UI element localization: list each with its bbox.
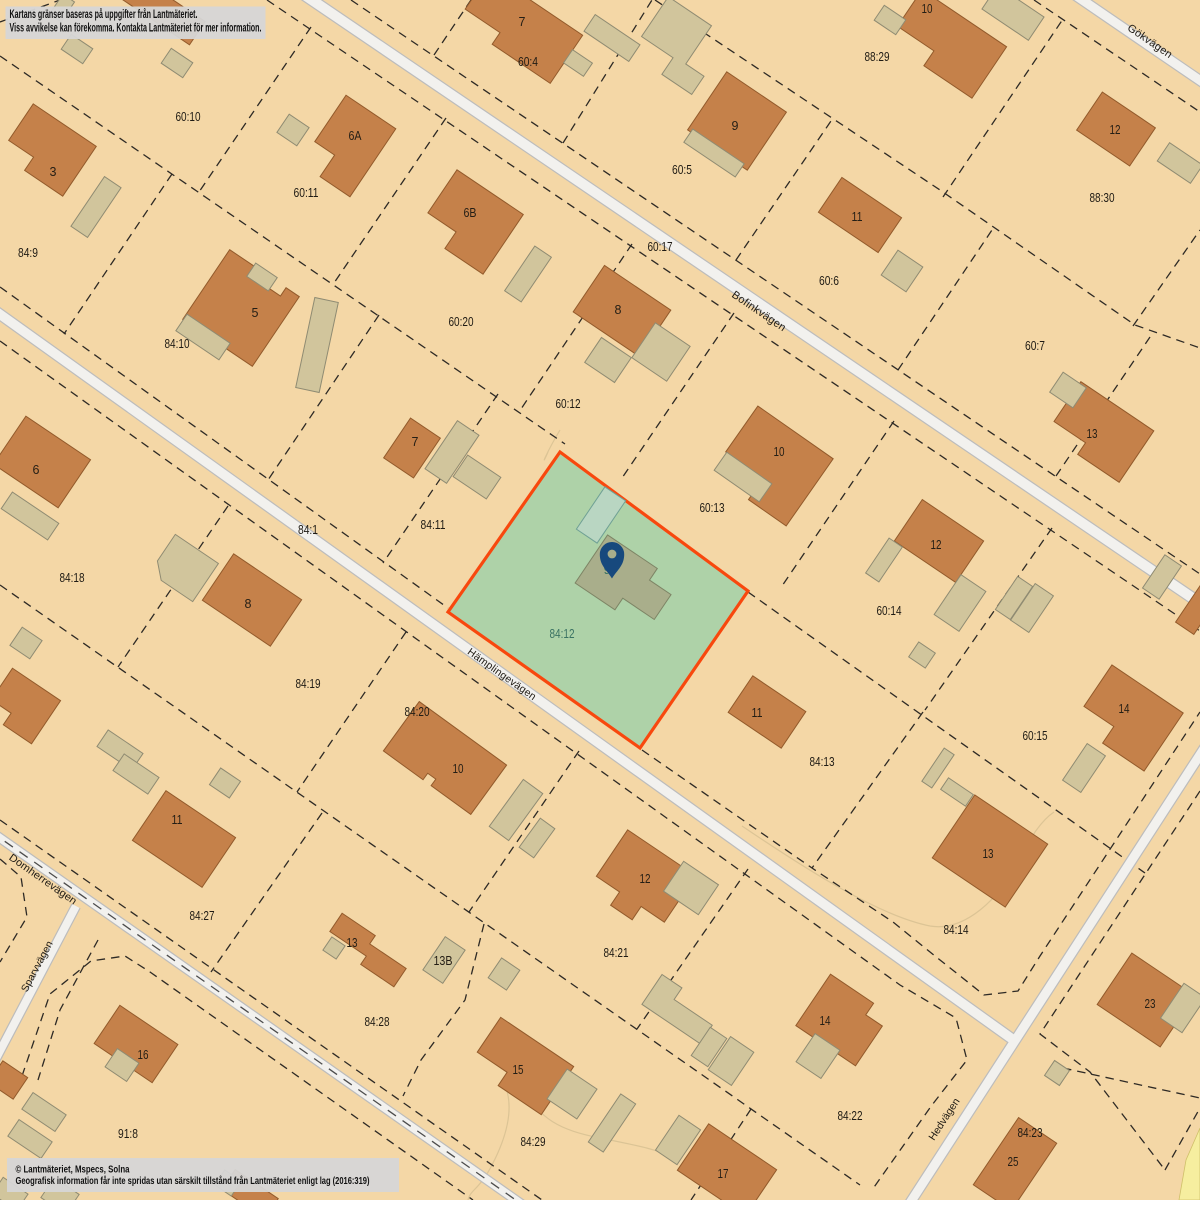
svg-text:84:11: 84:11 <box>421 518 446 532</box>
svg-text:88:29: 88:29 <box>865 50 890 64</box>
svg-text:Geografisk information får int: Geografisk information får inte spridas … <box>16 1175 370 1187</box>
svg-text:60:13: 60:13 <box>700 501 725 515</box>
svg-text:6A: 6A <box>349 129 363 143</box>
svg-text:84:1: 84:1 <box>298 523 318 537</box>
svg-text:60:11: 60:11 <box>294 186 319 200</box>
svg-text:7: 7 <box>519 15 526 29</box>
svg-text:11: 11 <box>172 813 183 827</box>
svg-text:84:12: 84:12 <box>550 627 575 641</box>
svg-text:84:28: 84:28 <box>365 1015 390 1029</box>
svg-text:25: 25 <box>1008 1155 1019 1169</box>
svg-text:10: 10 <box>453 762 464 776</box>
svg-text:Viss avvikelse kan förekomma.: Viss avvikelse kan förekomma. Kontakta L… <box>10 21 262 35</box>
svg-text:11: 11 <box>752 706 763 720</box>
svg-text:84:13: 84:13 <box>810 755 835 769</box>
svg-text:84:10: 84:10 <box>165 337 190 351</box>
svg-text:12: 12 <box>1110 123 1121 137</box>
svg-text:60:15: 60:15 <box>1023 729 1048 743</box>
svg-text:84:14: 84:14 <box>944 923 969 937</box>
svg-text:5: 5 <box>252 306 259 320</box>
svg-text:13: 13 <box>1087 427 1098 441</box>
svg-text:8: 8 <box>615 303 622 317</box>
svg-text:60:14: 60:14 <box>877 604 902 618</box>
svg-text:84:19: 84:19 <box>296 677 321 691</box>
svg-text:60:12: 60:12 <box>556 397 581 411</box>
svg-text:84:27: 84:27 <box>190 909 215 923</box>
svg-text:9: 9 <box>732 119 739 133</box>
svg-text:Kartans gränser baseras på upp: Kartans gränser baseras på uppgifter frå… <box>10 7 198 21</box>
svg-text:91:8: 91:8 <box>118 1127 138 1141</box>
svg-text:84:22: 84:22 <box>838 1109 863 1123</box>
svg-text:60:7: 60:7 <box>1025 339 1045 353</box>
svg-text:84:29: 84:29 <box>521 1135 546 1149</box>
svg-text:7: 7 <box>412 435 419 449</box>
svg-text:84:9: 84:9 <box>18 246 38 260</box>
svg-text:13: 13 <box>347 936 358 950</box>
svg-text:13: 13 <box>983 847 994 861</box>
svg-text:12: 12 <box>931 538 942 552</box>
svg-text:14: 14 <box>1119 702 1130 716</box>
svg-text:13B: 13B <box>434 954 453 968</box>
svg-text:10: 10 <box>922 2 933 16</box>
svg-text:8: 8 <box>245 597 252 611</box>
svg-text:84:21: 84:21 <box>604 946 629 960</box>
svg-text:84:18: 84:18 <box>60 571 85 585</box>
svg-text:17: 17 <box>718 1167 729 1181</box>
svg-text:3: 3 <box>50 165 57 179</box>
svg-text:84:23: 84:23 <box>1018 1126 1043 1140</box>
svg-text:84:20: 84:20 <box>405 705 430 719</box>
svg-text:© Lantmäteriet, Mspecs, Solna: © Lantmäteriet, Mspecs, Solna <box>16 1164 130 1176</box>
svg-text:60:4: 60:4 <box>518 55 538 69</box>
svg-text:14: 14 <box>820 1014 831 1028</box>
svg-text:60:17: 60:17 <box>648 240 673 254</box>
svg-text:60:6: 60:6 <box>819 274 839 288</box>
svg-text:10: 10 <box>774 445 785 459</box>
svg-text:16: 16 <box>138 1048 149 1062</box>
svg-text:6: 6 <box>33 463 40 477</box>
svg-text:88:30: 88:30 <box>1090 191 1115 205</box>
svg-text:11: 11 <box>852 210 863 224</box>
svg-text:6B: 6B <box>464 206 477 220</box>
svg-text:60:10: 60:10 <box>176 110 201 124</box>
svg-text:23: 23 <box>1145 997 1156 1011</box>
svg-text:15: 15 <box>513 1063 524 1077</box>
svg-text:12: 12 <box>640 872 651 886</box>
svg-text:60:5: 60:5 <box>672 163 692 177</box>
svg-text:60:20: 60:20 <box>449 315 474 329</box>
